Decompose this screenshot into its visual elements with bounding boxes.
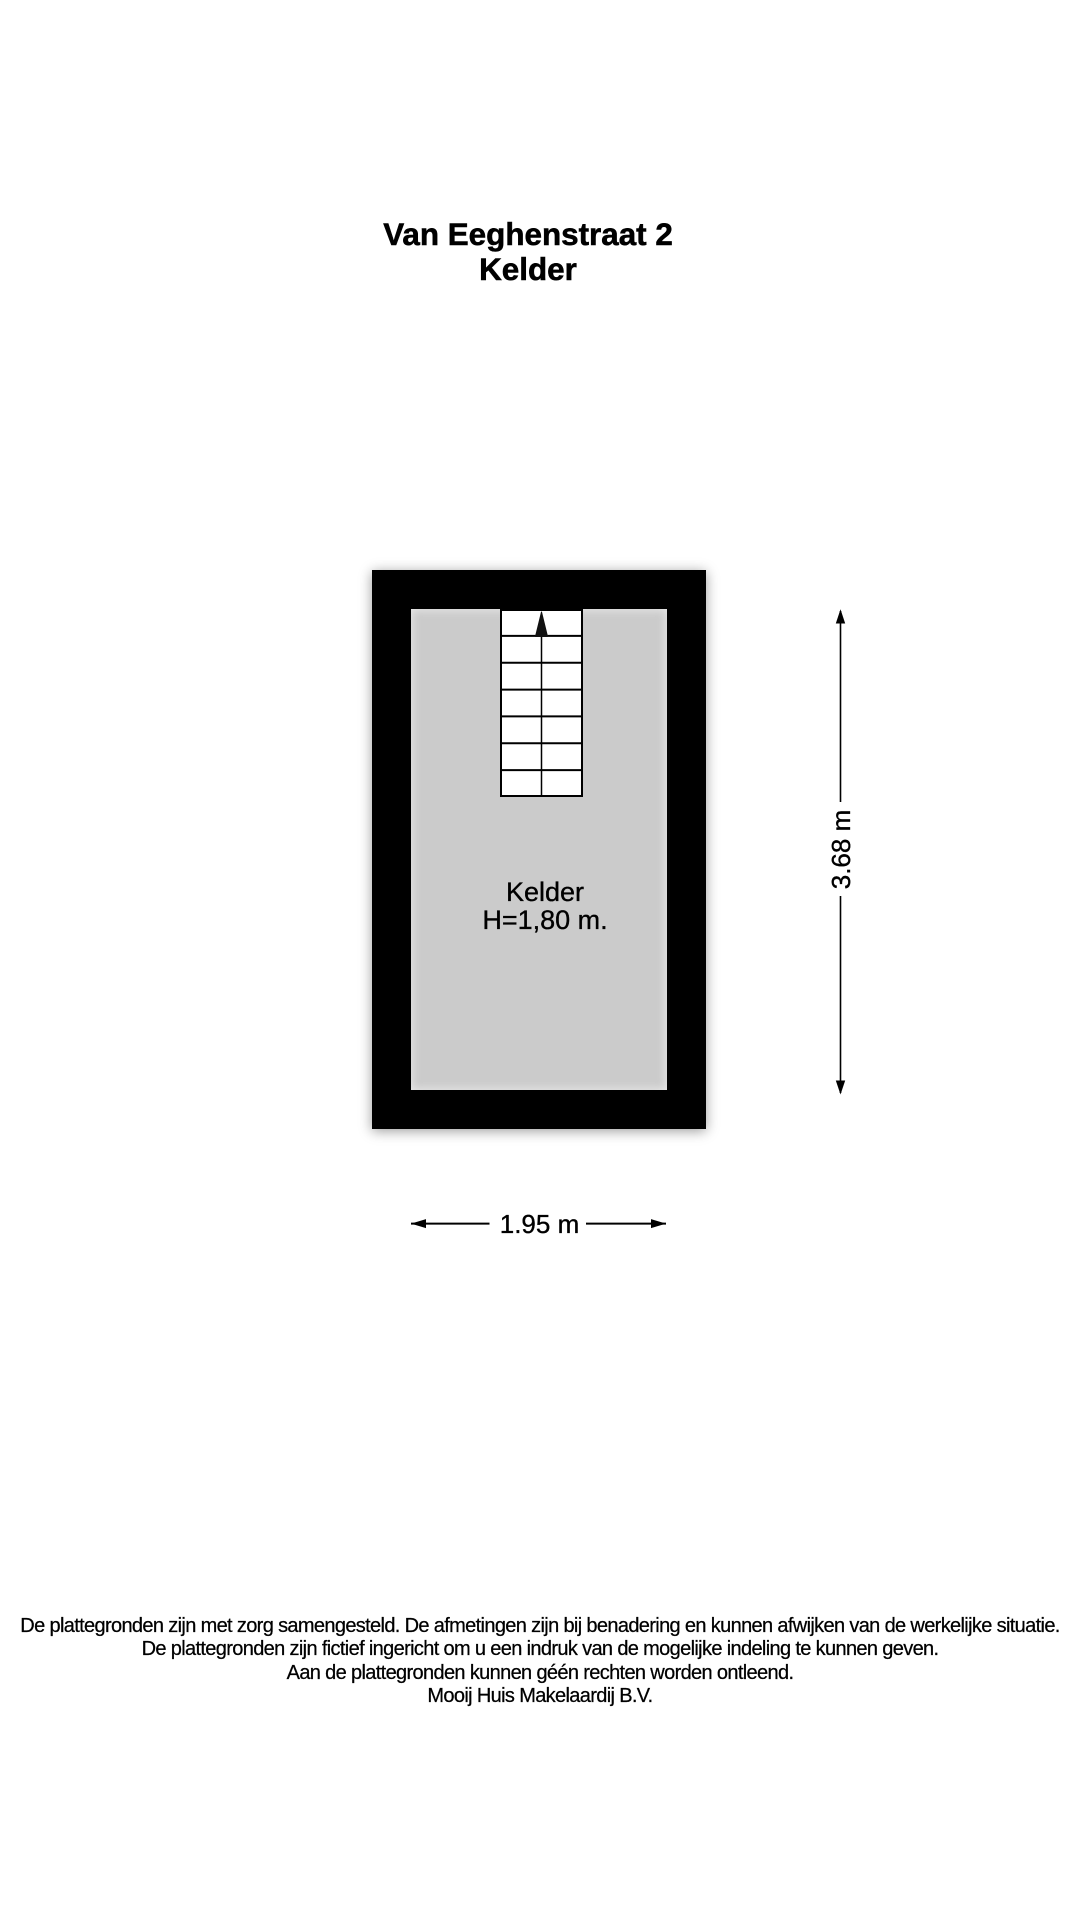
svg-text:3.68 m: 3.68 m xyxy=(826,810,856,890)
svg-text:1.95 m: 1.95 m xyxy=(500,1209,580,1239)
